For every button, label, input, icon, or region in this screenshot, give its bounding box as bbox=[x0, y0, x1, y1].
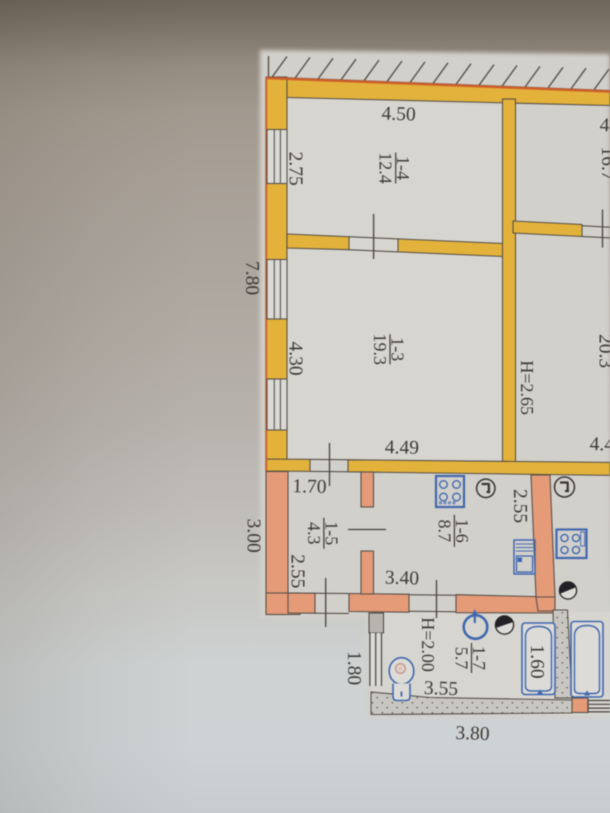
svg-text:2.75: 2.75 bbox=[285, 152, 306, 186]
svg-text:7.80: 7.80 bbox=[241, 261, 262, 295]
svg-text:1.80: 1.80 bbox=[343, 651, 364, 685]
svg-text:3.40: 3.40 bbox=[385, 567, 420, 589]
svg-text:1.70: 1.70 bbox=[292, 476, 327, 498]
svg-text:16.7: 16.7 bbox=[597, 146, 610, 180]
svg-text:5.7: 5.7 bbox=[452, 647, 472, 670]
svg-text:2.55: 2.55 bbox=[509, 489, 530, 523]
svg-text:H=2.00: H=2.00 bbox=[418, 617, 438, 672]
svg-text:4.50: 4.50 bbox=[381, 103, 416, 125]
svg-text:1.60: 1.60 bbox=[526, 644, 547, 678]
svg-text:H=2.65: H=2.65 bbox=[517, 360, 537, 415]
svg-text:4.3: 4.3 bbox=[304, 522, 324, 545]
svg-text:12.4: 12.4 bbox=[376, 152, 396, 184]
svg-text:4.50: 4.50 bbox=[599, 115, 610, 137]
svg-text:3.80: 3.80 bbox=[455, 723, 490, 745]
svg-text:20.3: 20.3 bbox=[595, 334, 610, 368]
svg-text:8.7: 8.7 bbox=[434, 520, 454, 543]
svg-text:4.49: 4.49 bbox=[385, 437, 420, 459]
svg-text:3.00: 3.00 bbox=[243, 519, 264, 553]
svg-text:4.49: 4.49 bbox=[589, 434, 610, 456]
svg-text:4.30: 4.30 bbox=[285, 341, 306, 375]
svg-text:2.55: 2.55 bbox=[287, 554, 308, 588]
svg-text:19.3: 19.3 bbox=[370, 334, 390, 366]
svg-text:3.55: 3.55 bbox=[424, 678, 459, 700]
